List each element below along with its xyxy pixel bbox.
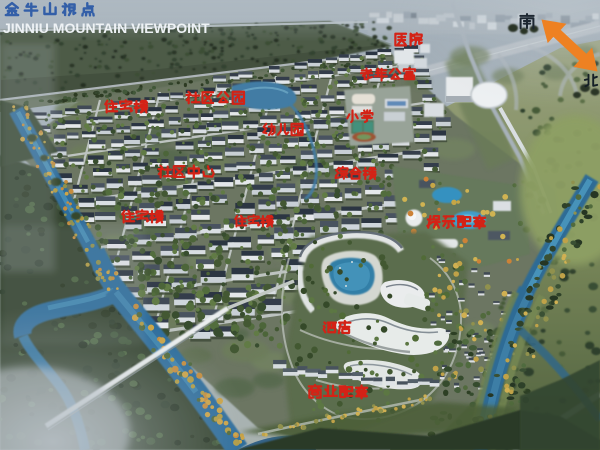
svg-text:JINNIU MOUNTAIN VIEWPOINT: JINNIU MOUNTAIN VIEWPOINT: [3, 20, 210, 36]
